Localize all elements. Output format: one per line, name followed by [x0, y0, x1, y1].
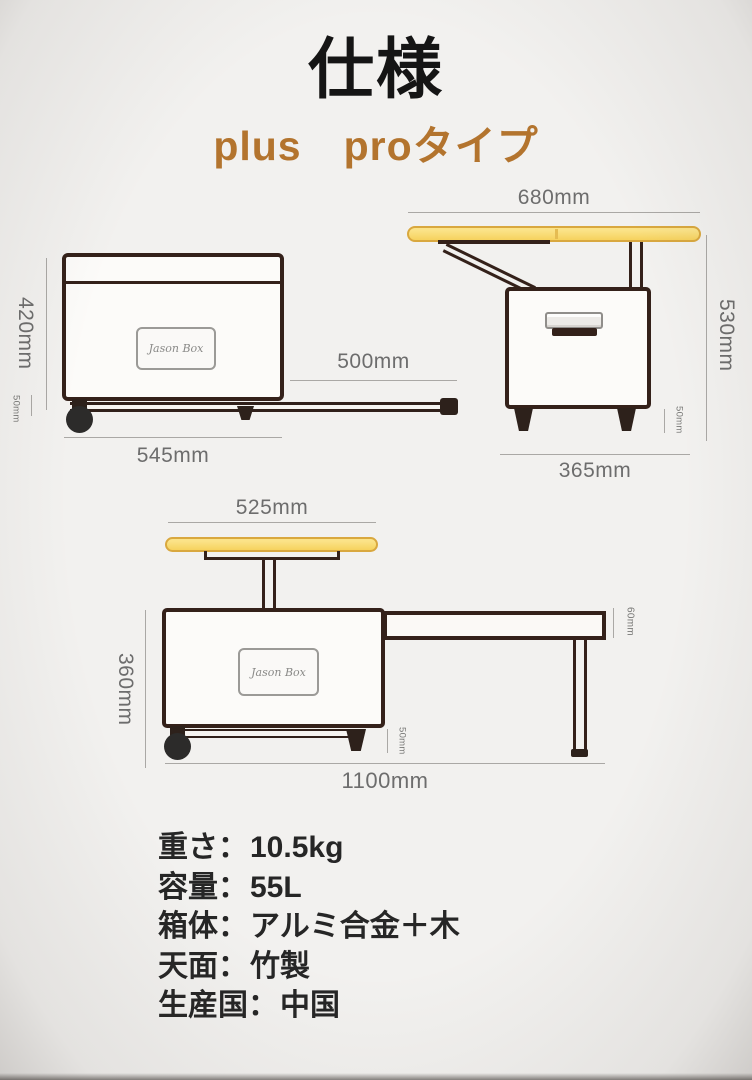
- dim-label-545: 545mm: [64, 444, 282, 468]
- brand-label: Jason Box: [149, 342, 204, 355]
- box-handle-bar: [552, 328, 597, 336]
- closed-box-lid-seam: [66, 281, 280, 284]
- spec-row-body-material: 箱体：アルミ合金＋木: [158, 907, 460, 947]
- brand-plate: Jason Box: [136, 327, 216, 370]
- open-box-body: [505, 287, 651, 409]
- dim-line-365: [500, 454, 690, 455]
- dim-label-1100: 1100mm: [165, 768, 605, 794]
- open-box-foot-right: [617, 408, 636, 431]
- base-rail: [183, 729, 355, 738]
- brand-label-2: Jason Box: [251, 666, 306, 679]
- slide-rail: [70, 402, 443, 412]
- dim-label-500: 500mm: [290, 350, 457, 374]
- dim-line-1100: [165, 763, 605, 764]
- spec-colon: ：: [218, 871, 248, 904]
- dim-line-50-extended: [387, 729, 388, 753]
- lift-bracket-bar: [438, 240, 550, 244]
- spec-label: 天面: [158, 950, 218, 983]
- page-title: 仕様: [0, 16, 752, 112]
- spec-colon: ：: [248, 989, 278, 1022]
- spec-label: 容量: [158, 871, 218, 904]
- photo-bottom-edge: [0, 1073, 752, 1080]
- spec-label: 箱体: [158, 910, 218, 943]
- spec-value: アルミ合金＋木: [250, 910, 460, 943]
- dim-label-60: 60mm: [618, 597, 642, 645]
- spec-colon: ：: [218, 910, 248, 943]
- spec-label: 生産国: [158, 989, 248, 1022]
- dim-line-525: [168, 522, 376, 523]
- closed-box-body: Jason Box: [62, 253, 284, 401]
- page-subtitle: plus proタイプ: [0, 112, 752, 172]
- tabletop-extended: [165, 537, 378, 552]
- dim-label-365: 365mm: [500, 459, 690, 483]
- caster-wheel-2: [164, 733, 191, 760]
- dim-line-50-closed: [31, 395, 32, 416]
- dim-label-360: 360mm: [108, 614, 142, 764]
- spec-list: 重さ：10.5kg 容量：55L 箱体：アルミ合金＋木 天面：竹製 生産国：中国: [158, 828, 460, 1026]
- extension-leg-foot: [571, 749, 588, 757]
- dim-label-50-closed: 50mm: [5, 391, 27, 427]
- dim-line-420: [46, 258, 47, 410]
- open-box-foot-left: [514, 408, 533, 431]
- tabletop-seam: [555, 229, 558, 239]
- spec-value: 10.5kg: [250, 831, 343, 864]
- closed-box-foot: [237, 406, 254, 420]
- dim-label-420: 420mm: [8, 258, 42, 408]
- dim-line-500: [290, 380, 457, 381]
- dim-line-680: [408, 212, 700, 213]
- tabletop-column: [262, 560, 276, 609]
- dim-line-360: [145, 610, 146, 768]
- extended-box-foot: [346, 729, 366, 751]
- tabletop-bracket: [204, 551, 340, 560]
- spec-row-weight: 重さ：10.5kg: [158, 828, 460, 868]
- spec-value: 中国: [280, 989, 340, 1022]
- spec-sheet: 仕様 plus proタイプ 420mm 50mm Jason Box 545m…: [0, 0, 752, 1080]
- spec-value: 55L: [250, 871, 302, 904]
- box-handle: [545, 312, 603, 329]
- dim-line-530: [706, 235, 707, 441]
- dim-label-50-open: 50mm: [668, 400, 690, 440]
- spec-value: 竹製: [250, 950, 310, 983]
- dim-label-525: 525mm: [168, 496, 376, 520]
- spec-colon: ：: [218, 950, 248, 983]
- lift-support-post: [629, 242, 643, 289]
- spec-row-top-material: 天面：竹製: [158, 947, 460, 987]
- dim-label-50-extended: 50mm: [391, 721, 413, 761]
- caster-wheel: [66, 406, 93, 433]
- dim-label-680: 680mm: [408, 186, 700, 210]
- extension-table: [383, 611, 606, 640]
- dim-line-545: [64, 437, 282, 438]
- dim-line-50-open: [664, 409, 665, 433]
- dim-line-60: [613, 608, 614, 638]
- extended-box-body: Jason Box: [162, 608, 385, 728]
- spec-row-country: 生産国：中国: [158, 986, 460, 1026]
- dim-label-530: 530mm: [708, 262, 744, 408]
- extension-leg: [573, 640, 587, 752]
- spec-colon: ：: [218, 831, 248, 864]
- brand-plate-2: Jason Box: [238, 648, 319, 696]
- slide-rail-endcap: [440, 398, 458, 415]
- spec-row-capacity: 容量：55L: [158, 868, 460, 908]
- spec-label: 重さ: [158, 831, 218, 864]
